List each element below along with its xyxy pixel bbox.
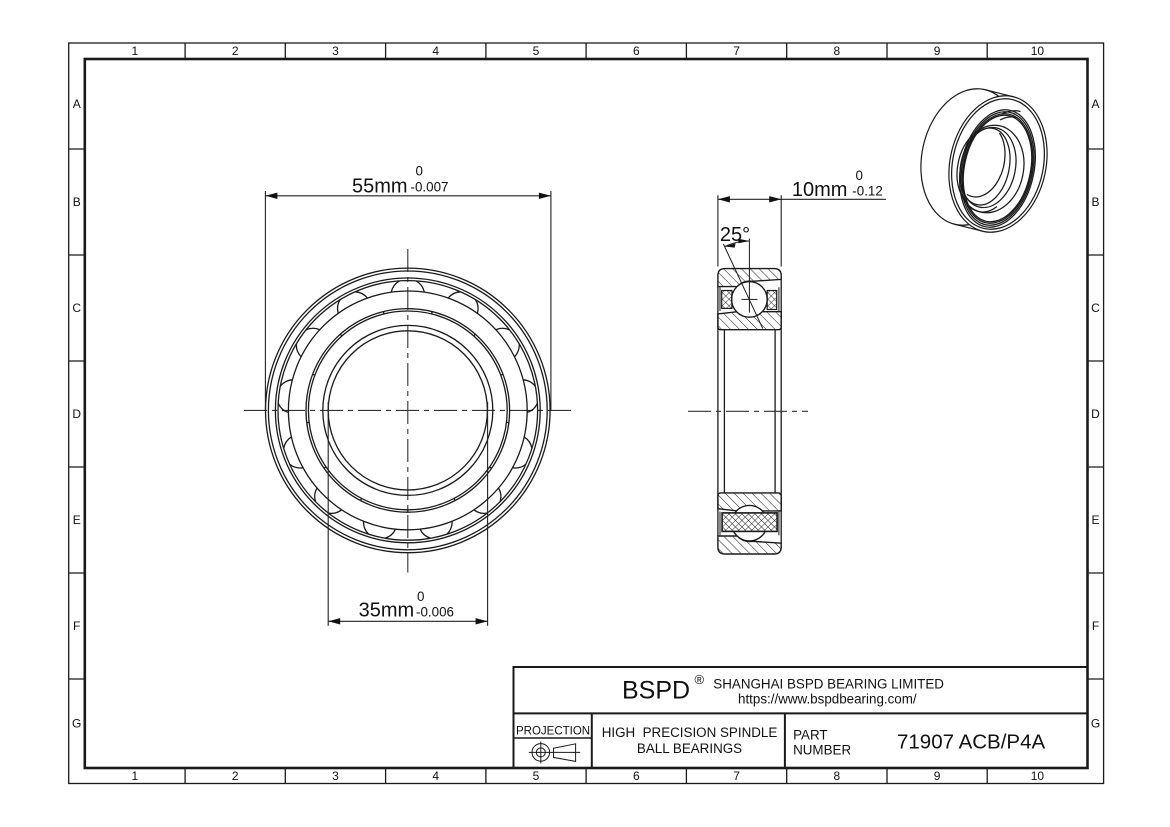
svg-text:1: 1 [132, 769, 139, 783]
svg-text:8: 8 [833, 769, 840, 783]
svg-text:https://www.bspdbearing.com/: https://www.bspdbearing.com/ [738, 692, 917, 707]
svg-text:F: F [1092, 619, 1099, 633]
svg-text:0: 0 [417, 589, 424, 604]
svg-text:G: G [72, 717, 81, 731]
svg-text:-0.12: -0.12 [852, 184, 883, 199]
svg-text:5: 5 [533, 769, 540, 783]
svg-text:7: 7 [733, 769, 740, 783]
svg-text:B: B [1091, 195, 1099, 209]
svg-text:9: 9 [934, 769, 941, 783]
svg-text:-0.007: -0.007 [411, 179, 449, 194]
svg-text:A: A [1091, 97, 1099, 111]
svg-text:4: 4 [432, 769, 439, 783]
svg-text:71907 ACB/P4A: 71907 ACB/P4A [897, 730, 1045, 753]
svg-text:E: E [73, 513, 81, 527]
svg-text:2: 2 [232, 44, 239, 58]
svg-text:PART: PART [793, 727, 827, 742]
svg-text:10mm: 10mm [792, 179, 848, 201]
svg-text:0: 0 [416, 164, 423, 179]
svg-text:4: 4 [432, 44, 439, 58]
svg-text:25°: 25° [720, 224, 750, 246]
svg-text:9: 9 [934, 44, 941, 58]
svg-text:A: A [73, 97, 81, 111]
svg-text:10: 10 [1031, 44, 1045, 58]
svg-text:®: ® [695, 672, 705, 687]
svg-text:SHANGHAI BSPD BEARING LIMITED: SHANGHAI BSPD BEARING LIMITED [713, 677, 944, 692]
svg-text:5: 5 [533, 44, 540, 58]
svg-text:6: 6 [633, 769, 640, 783]
svg-text:BSPD: BSPD [622, 676, 690, 704]
svg-text:D: D [1091, 407, 1100, 421]
svg-text:2: 2 [232, 769, 239, 783]
svg-text:G: G [1091, 717, 1100, 731]
svg-text:F: F [73, 619, 80, 633]
svg-text:0: 0 [856, 168, 863, 183]
svg-text:D: D [72, 407, 81, 421]
svg-text:3: 3 [332, 769, 339, 783]
svg-text:10: 10 [1031, 769, 1045, 783]
svg-text:55mm: 55mm [352, 175, 408, 197]
svg-text:C: C [1091, 301, 1100, 315]
svg-text:1: 1 [132, 44, 139, 58]
svg-text:7: 7 [733, 44, 740, 58]
svg-text:NUMBER: NUMBER [793, 742, 851, 757]
svg-text:C: C [72, 301, 81, 315]
svg-text:-0.006: -0.006 [416, 605, 454, 620]
svg-text:6: 6 [633, 44, 640, 58]
svg-text:HIGH PRECISION SPINDLE: HIGH PRECISION SPINDLE [602, 725, 778, 740]
svg-text:BALL BEARINGS: BALL BEARINGS [637, 741, 742, 756]
svg-text:3: 3 [332, 44, 339, 58]
svg-text:B: B [73, 195, 81, 209]
svg-text:PROJECTION: PROJECTION [516, 726, 590, 738]
svg-text:E: E [1091, 513, 1099, 527]
svg-text:35mm: 35mm [359, 600, 415, 622]
svg-text:8: 8 [833, 44, 840, 58]
